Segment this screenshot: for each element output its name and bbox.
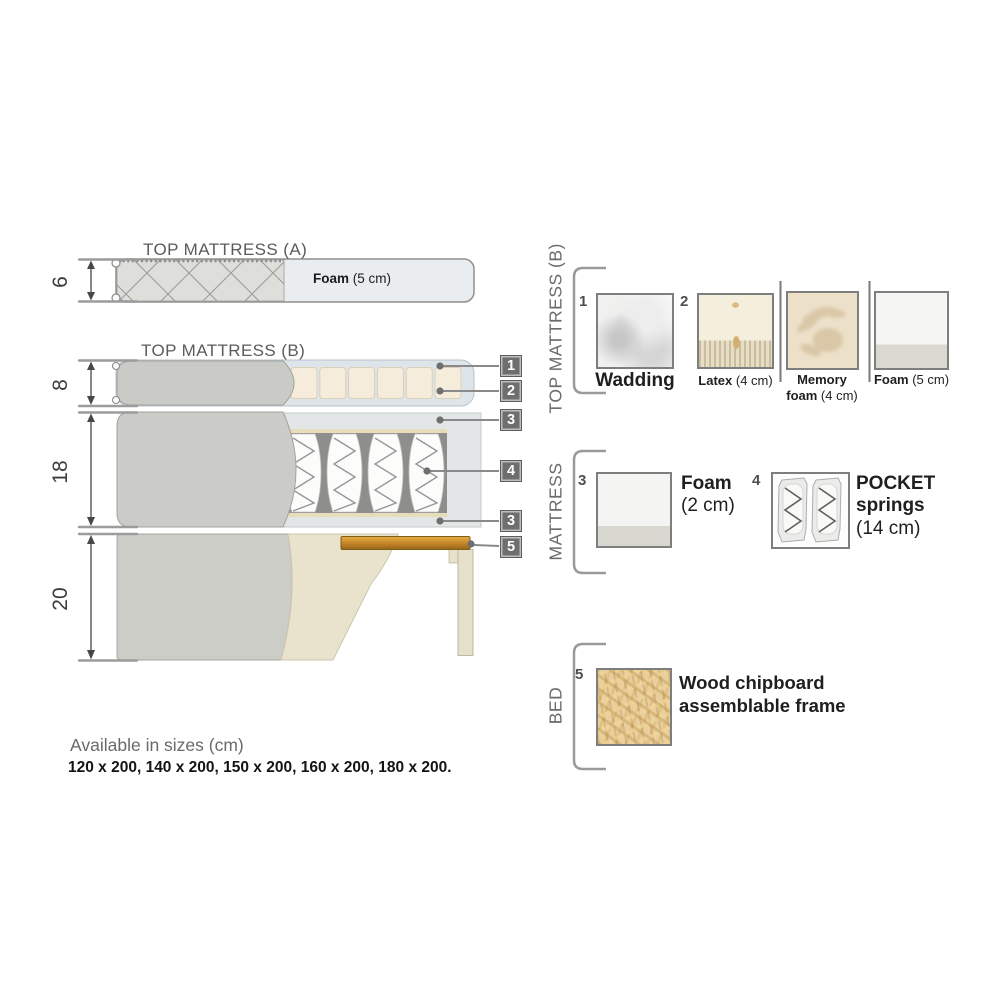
pocket-springs-graphic — [286, 434, 444, 512]
dimension-8: 8 — [49, 365, 73, 405]
dimension-6: 6 — [49, 262, 73, 302]
wood-chipboard-label: Wood chipboard assemblable frame — [679, 671, 854, 717]
memory-foam-swatch — [786, 291, 859, 370]
foam-5cm-swatch — [874, 291, 949, 370]
pocket-springs-swatch — [771, 472, 850, 549]
callout-badge-1: 1 — [500, 355, 522, 377]
dimension-18: 18 — [49, 452, 73, 492]
callout-badge-3-bottom: 3 — [500, 510, 522, 532]
wood-chipboard-swatch — [596, 668, 672, 746]
legend-section-bed: BED — [546, 676, 567, 736]
diagram-artwork — [0, 0, 1000, 1000]
memory-foam-label: Memory foam (4 cm) — [782, 372, 862, 405]
mattress-infographic: TOP MATTRESS (A) TOP MATTRESS (B) Foam (… — [0, 0, 1000, 1000]
legend-section-top-mattress-b: TOP MATTRESS (B) — [546, 254, 567, 414]
wadding-swatch — [596, 293, 674, 369]
pocket-springs-swatch-graphic — [773, 474, 848, 547]
dimension-markers — [79, 260, 137, 661]
callout-badge-4: 4 — [500, 460, 522, 482]
foam-5cm-label: Foam (5 cm) — [863, 372, 960, 387]
top-mattress-b-graphic — [113, 360, 500, 406]
callout-badge-5: 5 — [500, 536, 522, 558]
legend-num-5: 5 — [575, 666, 583, 683]
mattress-graphic — [117, 412, 499, 527]
latex-swatch — [697, 293, 774, 369]
legend-num-3: 3 — [578, 472, 586, 489]
top-mattress-a-title: TOP MATTRESS (A) — [143, 240, 307, 260]
bed-graphic — [117, 534, 499, 660]
latex-blocks-graphic — [291, 368, 461, 399]
callout-badge-2: 2 — [500, 380, 522, 402]
foam-2cm-swatch — [596, 472, 672, 548]
pocket-springs-label: POCKET springs(14 cm) — [856, 473, 951, 540]
wood-board-graphic — [341, 537, 470, 550]
legend-num-2: 2 — [680, 293, 688, 310]
hand-imprint-graphic — [788, 293, 857, 368]
legend-section-mattress: MATTRESS — [546, 452, 567, 572]
callout-badge-3-top: 3 — [500, 409, 522, 431]
top-mattress-b-title: TOP MATTRESS (B) — [141, 341, 305, 361]
available-sizes-list: 120 x 200, 140 x 200, 150 x 200, 160 x 2… — [68, 759, 452, 777]
latex-label: Latex (4 cm) — [682, 373, 789, 388]
available-sizes-title: Available in sizes (cm) — [70, 735, 244, 756]
wadding-label: Wadding — [586, 370, 684, 392]
legend-num-4: 4 — [752, 472, 760, 489]
foam-2cm-label: Foam(2 cm) — [681, 473, 761, 518]
dimension-20: 20 — [49, 579, 73, 619]
foam-layer-label: Foam (5 cm) — [272, 271, 432, 286]
legend-num-1: 1 — [579, 293, 587, 310]
